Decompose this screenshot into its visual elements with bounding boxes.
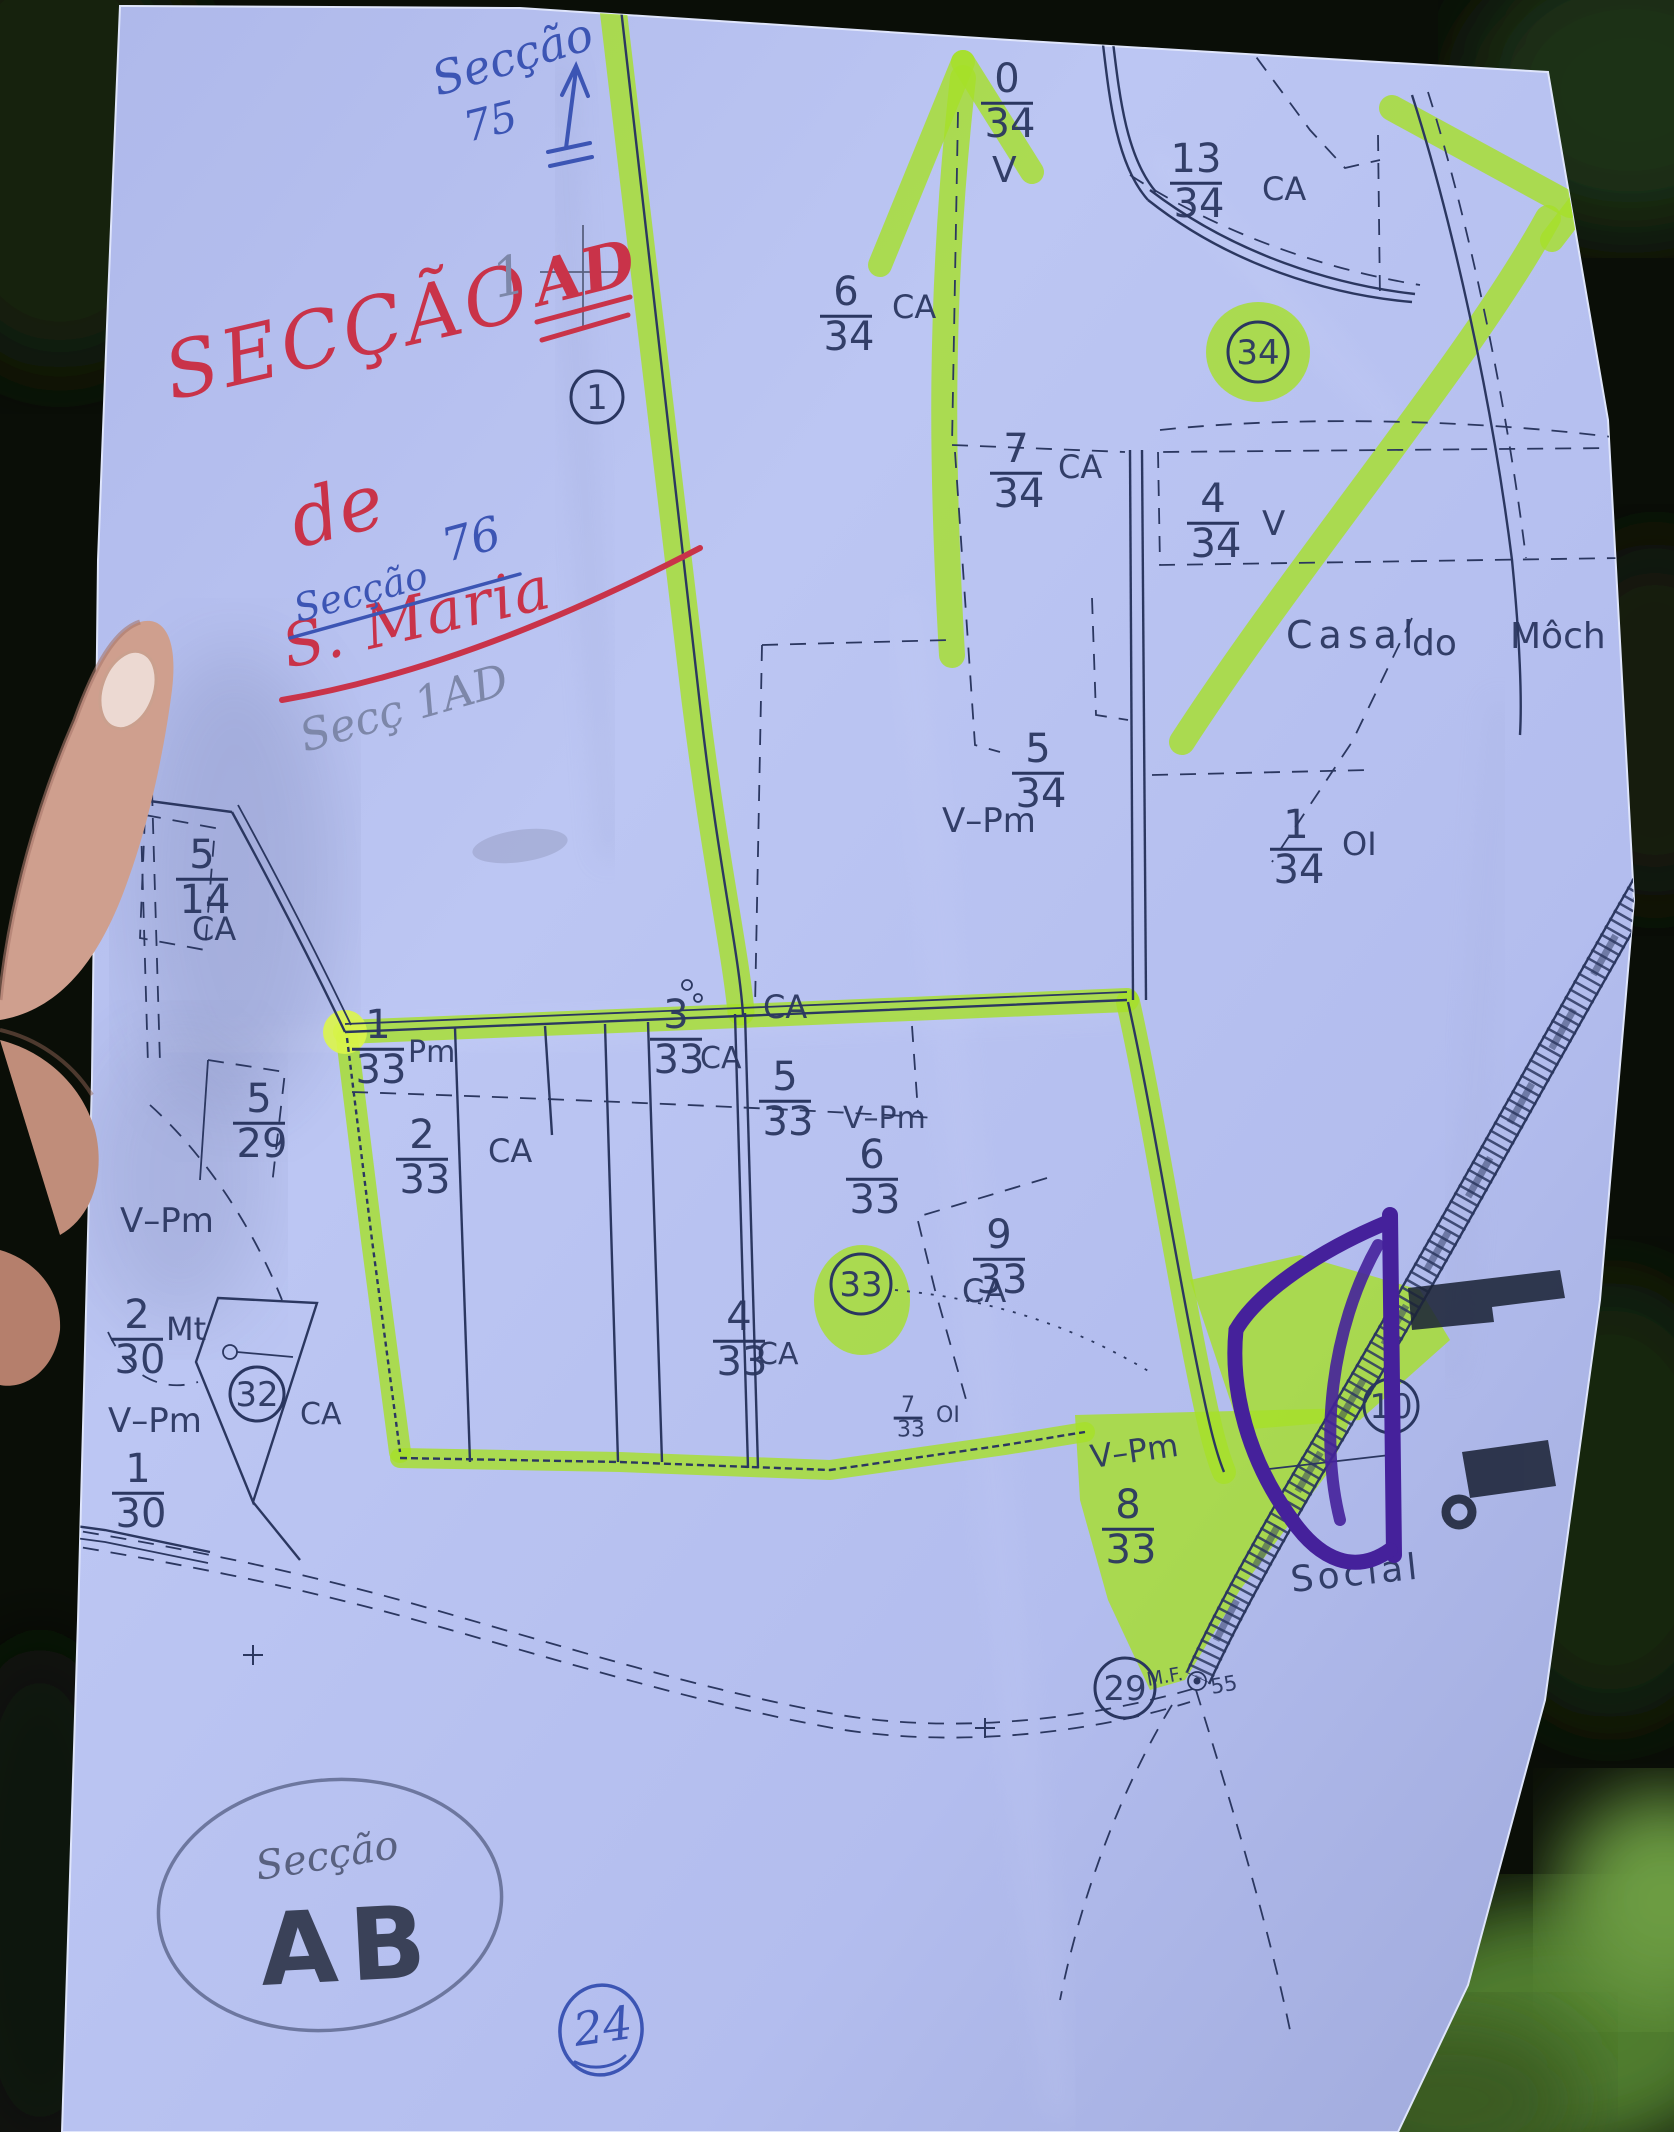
label-oi: OI [936, 1403, 960, 1428]
label-ca: CA [1262, 170, 1306, 208]
circled-24-num: 24 [569, 1995, 635, 2057]
svg-text:33: 33 [356, 1047, 407, 1093]
svg-text:2: 2 [124, 1292, 149, 1338]
svg-text:33: 33 [400, 1157, 451, 1203]
svg-text:33: 33 [850, 1177, 901, 1223]
svg-text:7: 7 [1003, 426, 1028, 472]
svg-text:4: 4 [1200, 476, 1225, 522]
svg-text:6: 6 [859, 1132, 884, 1178]
label-ca: CA [962, 1272, 1006, 1310]
svg-text:34: 34 [1236, 333, 1279, 373]
svg-text:8: 8 [1115, 1482, 1140, 1528]
svg-text:33: 33 [1106, 1527, 1157, 1573]
svg-text:1: 1 [586, 378, 608, 418]
svg-text:1: 1 [125, 1446, 150, 1492]
svg-text:5: 5 [1025, 726, 1050, 772]
svg-text:34: 34 [985, 101, 1036, 147]
label-vpm: V–Pm [942, 801, 1036, 841]
svg-text:9: 9 [986, 1212, 1011, 1258]
svg-text:33: 33 [654, 1037, 705, 1083]
svg-text:34: 34 [1191, 521, 1242, 567]
label-v: V [1262, 504, 1285, 544]
svg-text:5: 5 [189, 832, 214, 878]
label-55: 55 [1209, 1671, 1239, 1699]
svg-text:34: 34 [824, 314, 875, 360]
svg-text:7: 7 [901, 1393, 915, 1418]
svg-text:33: 33 [763, 1099, 814, 1145]
label-v: V [992, 150, 1017, 191]
svg-text:13: 13 [1171, 136, 1222, 182]
label-ca: CA [300, 1397, 342, 1432]
scene-svg: 0341334634734434534134514529133233333533… [0, 0, 1674, 2132]
svg-text:0: 0 [994, 56, 1019, 102]
photo-of-cadastral-map: 0341334634734434534134514529133233333533… [0, 0, 1674, 2132]
label-ca: CA [757, 1337, 799, 1372]
circled-parcel-number: 32 [230, 1367, 284, 1421]
svg-text:33: 33 [897, 1418, 925, 1443]
svg-text:34: 34 [1274, 847, 1325, 893]
label-vpm: V–Pm [843, 1101, 926, 1136]
label-ca: CA [488, 1132, 532, 1170]
svg-text:5: 5 [246, 1076, 271, 1122]
svg-text:4: 4 [726, 1294, 751, 1340]
label-do: do [1412, 623, 1457, 664]
svg-text:6: 6 [833, 269, 858, 315]
parcel-fraction: 1334 [1170, 136, 1224, 227]
label-mt: Mt [166, 1310, 206, 1348]
ab-circle-ab: AB [257, 1883, 441, 2009]
svg-text:30: 30 [115, 1337, 166, 1383]
label-pm: Pm [408, 1035, 455, 1070]
svg-text:5: 5 [772, 1054, 797, 1100]
svg-text:29: 29 [237, 1121, 288, 1167]
svg-text:34: 34 [1174, 181, 1225, 227]
svg-text:34: 34 [994, 471, 1045, 517]
label-vpm: V–Pm [120, 1201, 214, 1241]
svg-text:33: 33 [839, 1265, 882, 1305]
label-ca: CA [700, 1041, 742, 1076]
label-oi: OI [1342, 825, 1377, 863]
svg-text:3: 3 [663, 992, 688, 1038]
svg-text:29: 29 [1103, 1669, 1146, 1709]
svg-text:2: 2 [409, 1112, 434, 1158]
svg-text:32: 32 [235, 1375, 278, 1415]
label-casal: Casal [1286, 613, 1419, 657]
label-ca: CA [192, 910, 236, 948]
svg-text:1: 1 [1283, 802, 1308, 848]
label-ca: CA [892, 288, 936, 326]
svg-text:1: 1 [365, 1002, 390, 1048]
label-ca: CA [763, 988, 807, 1026]
label-moch: Môch [1510, 616, 1606, 657]
label-vpm: V–Pm [108, 1401, 202, 1441]
label-ca: CA [1058, 448, 1102, 486]
svg-text:30: 30 [116, 1491, 167, 1537]
